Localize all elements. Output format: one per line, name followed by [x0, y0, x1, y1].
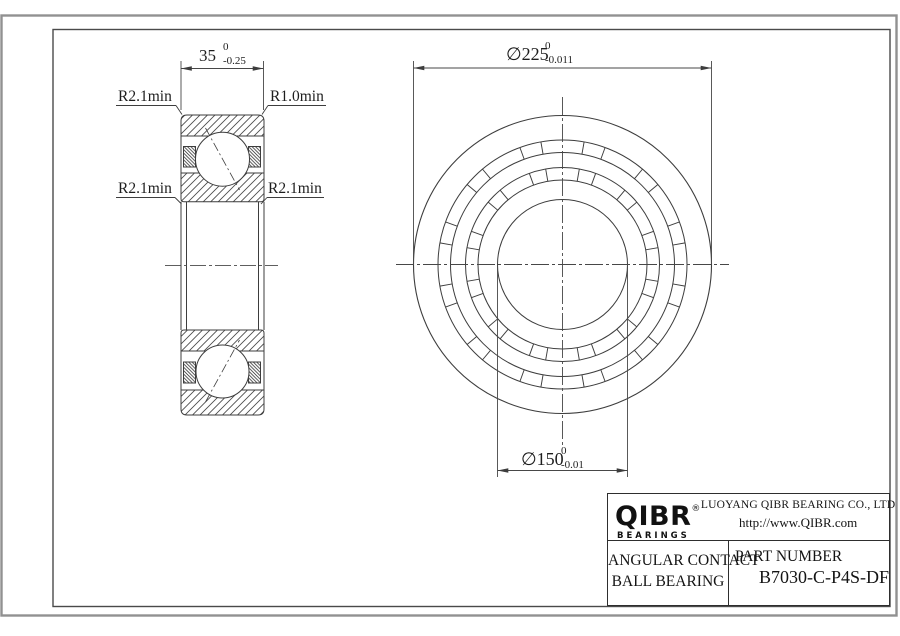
section-upper-half [181, 115, 264, 202]
bore-dim-tol-upper: 0 [561, 445, 567, 457]
width-dim-tol-lower: -0.25 [223, 55, 246, 67]
title-block: QIBR® BEARINGS LUOYANG QIBR BEARING CO.,… [607, 493, 890, 606]
section-lower-half [181, 330, 264, 415]
label-r-top-left: R2.1min [118, 88, 172, 105]
label-r-top-right: R1.0min [270, 88, 324, 105]
bore-dim-value: ∅150 [521, 449, 564, 469]
brand-logo: QIBR® [615, 496, 701, 530]
company-cell: LUOYANG QIBR BEARING CO., LTD http://www… [701, 494, 896, 540]
registered-trademark-symbol: ® [691, 504, 701, 514]
cage-lower-left [184, 362, 196, 383]
outer-dim-tol-lower: -0.011 [545, 54, 573, 66]
bore-dim-tol-lower: -0.01 [561, 459, 584, 471]
outer-dim-tol-upper: 0 [545, 40, 551, 52]
company-website: http://www.QIBR.com [701, 513, 896, 532]
title-block-header-row: QIBR® BEARINGS LUOYANG QIBR BEARING CO.,… [608, 494, 889, 541]
title-block-detail-row: ANGULAR CONTACT BALL BEARING PART NUMBER… [608, 541, 889, 605]
bore-lines [181, 202, 264, 330]
company-name: LUOYANG QIBR BEARING CO., LTD [701, 498, 896, 513]
cage-lower-right [249, 362, 261, 383]
product-type-line1: ANGULAR CONTACT [608, 550, 728, 571]
section-view: 35 0 -0.25 [116, 41, 326, 415]
product-type-line2: BALL BEARING [608, 571, 728, 592]
front-view: ∅225 0 -0.011 ∅150 0 -0.01 [396, 40, 729, 477]
width-dim-tol-upper: 0 [223, 41, 229, 53]
brand-logo-subtext: BEARINGS [617, 531, 701, 541]
label-r-mid-right: R2.1min [268, 180, 322, 197]
brand-logo-text: QIBR [615, 501, 691, 532]
front-view-centerlines [396, 97, 729, 448]
part-number-value: B7030-C-P4S-DF [759, 566, 889, 588]
width-dim-value: 35 [199, 46, 216, 65]
part-number-label: PART NUMBER [735, 548, 889, 566]
product-type-cell: ANGULAR CONTACT BALL BEARING [608, 541, 729, 605]
outer-dim-value: ∅225 [506, 44, 549, 64]
label-r-mid-left: R2.1min [118, 180, 172, 197]
width-dimension [181, 61, 264, 110]
part-number-cell: PART NUMBER B7030-C-P4S-DF [729, 541, 889, 605]
drawing-sheet: 35 0 -0.25 [0, 0, 900, 636]
cage-upper-left [184, 147, 196, 168]
cage-upper-right [249, 147, 261, 168]
logo-cell: QIBR® BEARINGS [608, 494, 701, 540]
